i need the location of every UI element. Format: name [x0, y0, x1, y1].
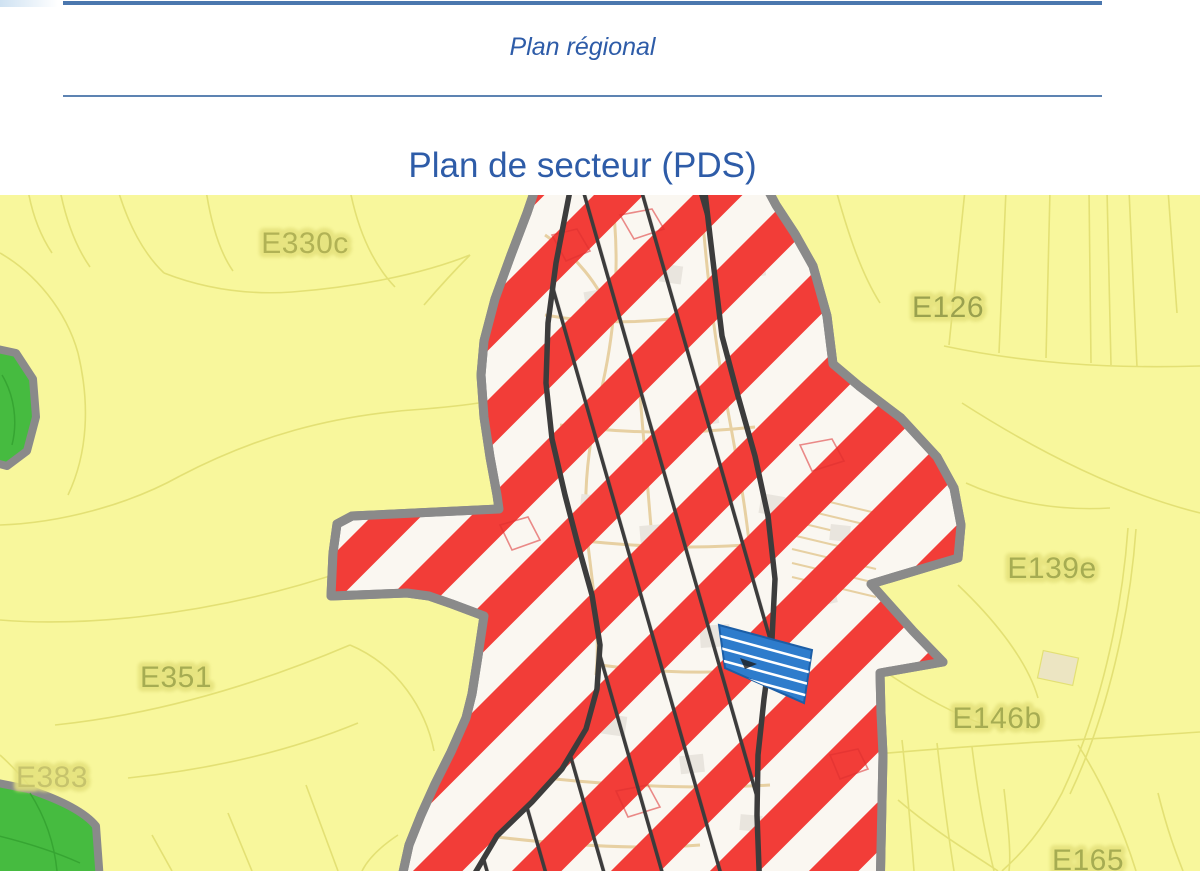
svg-text:E165: E165 — [1052, 844, 1124, 871]
zone-label-e146b: E146b E146b — [952, 702, 1041, 735]
corner-wash — [0, 0, 58, 7]
page-title: Plan de secteur (PDS) — [63, 146, 1102, 186]
zone-label-e126: E126 E126 — [912, 291, 984, 324]
sector-plan-map: E330c E330c E126 E126 E139e E139e E351 E… — [0, 195, 1200, 871]
svg-text:E126: E126 — [912, 291, 984, 324]
page-subtitle: Plan régional — [63, 33, 1102, 62]
svg-text:E383: E383 — [16, 761, 88, 794]
zone-label-e351: E351 E351 — [140, 661, 212, 694]
zone-label-e383: E383 E383 — [16, 761, 88, 794]
svg-text:E351: E351 — [140, 661, 212, 694]
svg-text:E330c: E330c — [261, 227, 349, 260]
top-rule — [63, 1, 1102, 5]
mid-rule — [63, 95, 1102, 97]
svg-text:E139e: E139e — [1007, 552, 1096, 585]
document-page: Plan régional Plan de secteur (PDS) — [0, 0, 1200, 871]
zone-label-e165: E165 E165 — [1052, 844, 1124, 871]
zone-label-e330c: E330c E330c — [261, 227, 349, 260]
map-canvas: E330c E330c E126 E126 E139e E139e E351 E… — [0, 195, 1200, 871]
zone-label-e139e: E139e E139e — [1007, 552, 1096, 585]
svg-text:E146b: E146b — [952, 702, 1041, 735]
